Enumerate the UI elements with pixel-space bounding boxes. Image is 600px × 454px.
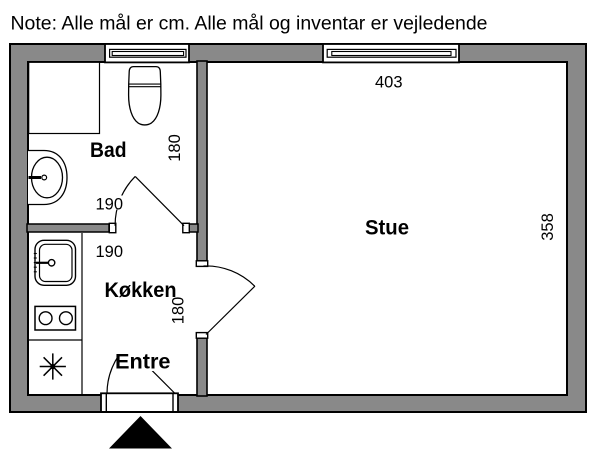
svg-text:180: 180 [170,297,188,325]
svg-text:Køkken: Køkken [105,279,177,302]
svg-text:Stue: Stue [365,217,409,240]
svg-text:Note: Alle mål er cm. Alle mål: Note: Alle mål er cm. Alle mål og invent… [11,14,488,35]
svg-text:180: 180 [166,134,184,162]
svg-text:Bad: Bad [90,139,127,162]
svg-text:190: 190 [96,195,124,213]
svg-text:358: 358 [539,213,557,241]
svg-text:190: 190 [96,243,124,261]
svg-text:403: 403 [375,73,403,91]
svg-text:Entre: Entre [115,351,171,374]
